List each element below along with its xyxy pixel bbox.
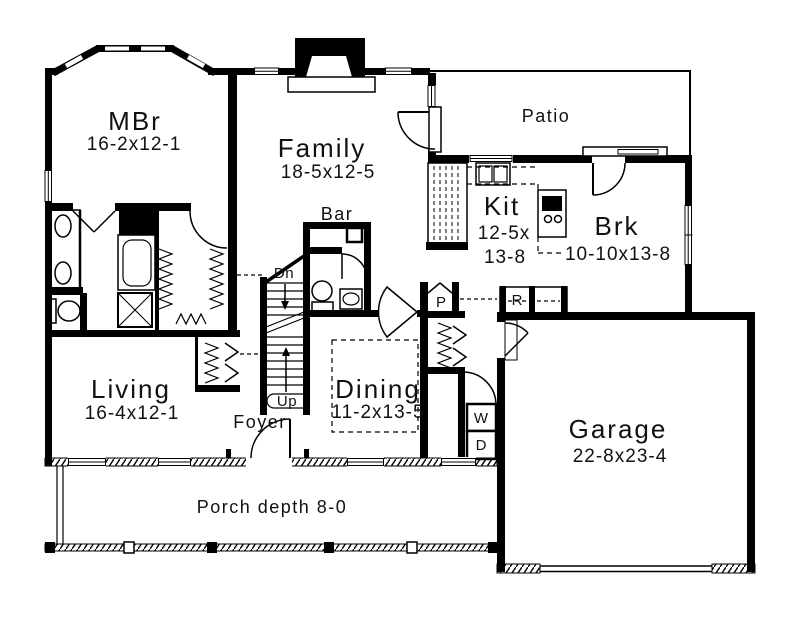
walkin-closet-rods xyxy=(159,249,262,324)
bar-sink xyxy=(347,228,362,242)
front-window-1 xyxy=(68,457,106,467)
hearth xyxy=(288,77,375,92)
kitchen-dims-1: 12-5x xyxy=(478,223,531,244)
garage-entry-door xyxy=(505,320,528,360)
front-window-3 xyxy=(347,457,384,467)
wic-door xyxy=(190,211,227,248)
pantry-letter: P xyxy=(436,294,446,311)
stove xyxy=(538,190,566,237)
rear-window-2 xyxy=(385,67,412,76)
porch-label: Porch depth 8-0 xyxy=(197,497,348,517)
brk-patio-landing xyxy=(583,147,667,156)
family-side-window xyxy=(427,85,437,107)
bar-label: Bar xyxy=(321,204,354,224)
refrigerator-letter: R xyxy=(512,292,523,309)
kitchen-label: Kit xyxy=(484,191,520,221)
foyer-label: Foyer xyxy=(233,412,287,432)
front-window-2 xyxy=(158,457,191,467)
rear-window-1 xyxy=(254,67,279,76)
shower xyxy=(118,293,152,327)
family-label: Family xyxy=(278,133,367,163)
family-patio-door xyxy=(398,73,441,157)
kitchen-dims-2: 13-8 xyxy=(484,247,526,268)
front-window-4 xyxy=(441,457,476,467)
living-dims: 16-4x12-1 xyxy=(85,403,180,424)
dining-dims: 11-2x13-5 xyxy=(331,402,424,423)
coat-closet xyxy=(195,330,262,392)
front-door-opening xyxy=(246,456,292,467)
stair-treads-lower xyxy=(267,337,303,385)
dining-kitchen-door xyxy=(378,287,417,337)
refrigerator-counter xyxy=(500,286,567,313)
dining-label: Dining xyxy=(335,374,421,404)
bathtub xyxy=(118,235,155,290)
washer-letter: W xyxy=(474,410,489,427)
mbr-dims: 16-2x12-1 xyxy=(87,134,182,155)
bay-window xyxy=(53,45,215,73)
living-label: Living xyxy=(91,374,171,404)
laundry-door xyxy=(463,372,496,404)
garage-door xyxy=(497,564,755,573)
family-dims: 18-5x12-5 xyxy=(281,162,376,183)
stairs-down-label: Dn xyxy=(274,265,294,282)
powder-door xyxy=(342,254,367,279)
sliding-panel xyxy=(429,107,441,152)
basement-stairs xyxy=(426,163,468,250)
stairs-up-label: Up xyxy=(277,393,297,410)
powder-sink xyxy=(340,289,362,309)
powder-toilet xyxy=(312,281,333,312)
brk-patio-door xyxy=(593,163,625,195)
dryer-letter: D xyxy=(476,437,487,454)
bar-powder-room xyxy=(305,222,371,317)
fireplace xyxy=(288,38,375,92)
brk-dims: 10-10x13-8 xyxy=(565,244,671,265)
floor-plan-page: MBr 16-2x12-1 Family 18-5x12-5 Patio Bar… xyxy=(0,0,800,625)
left-wall-window xyxy=(44,170,53,202)
mbr-label: MBr xyxy=(108,106,162,136)
right-wall-window xyxy=(684,205,693,265)
brk-label: Brk xyxy=(595,211,640,241)
garage-dims: 22-8x23-4 xyxy=(573,446,668,467)
staircase xyxy=(260,222,310,415)
floor-plan-canvas: MBr 16-2x12-1 Family 18-5x12-5 Patio Bar… xyxy=(0,0,800,625)
garage-label: Garage xyxy=(569,414,668,444)
patio-label: Patio xyxy=(522,106,571,126)
stair-down-arrow xyxy=(281,284,289,310)
kitchen-sink xyxy=(476,163,510,185)
